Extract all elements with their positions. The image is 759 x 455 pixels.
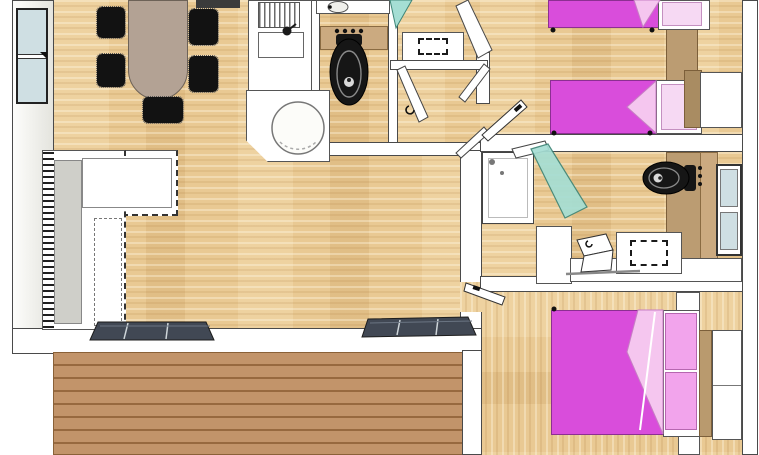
entry-hall-floor <box>390 0 486 155</box>
wc-right-wall <box>388 0 398 152</box>
deck-side-wall <box>462 350 482 455</box>
floor-plan-canvas <box>0 0 759 455</box>
kitchen-sink-bowl <box>258 32 304 58</box>
double-bed-cover <box>551 310 664 435</box>
sofa-back-cushion <box>82 158 172 208</box>
deck-terrace <box>53 352 463 455</box>
dining-chair <box>97 7 125 38</box>
cut-furniture-strip <box>196 0 240 8</box>
living-bottom-wall <box>12 328 482 354</box>
single-bed-1-pillow <box>662 2 702 26</box>
bathroom-window-pane <box>720 169 738 207</box>
vanity-side-cabinet <box>536 226 572 284</box>
wc-counter <box>320 26 388 50</box>
master-headboard <box>699 330 712 437</box>
dining-table <box>128 0 188 100</box>
dining-chair <box>189 9 218 45</box>
hall-cabinet-dashed-symbol <box>418 38 448 55</box>
sofa-seat-cushion <box>54 160 82 324</box>
master-nightstand-bottom <box>678 436 700 455</box>
dining-chair <box>97 54 125 87</box>
vanity-dashed-symbol <box>630 240 668 266</box>
master-wardrobe <box>712 330 742 440</box>
hall-inner-wall <box>390 60 488 70</box>
shower-tray-inner <box>488 158 528 218</box>
master-door-opening <box>460 282 482 312</box>
single-bed-1-cover <box>548 0 660 28</box>
single-bed-2-cover <box>550 80 658 134</box>
twin-bathroom-wall <box>480 134 743 152</box>
kitchen-corner-unit <box>246 90 330 162</box>
wc-washbasin <box>316 0 390 14</box>
sink-drainer <box>258 2 300 28</box>
sofa-side-cushion <box>94 218 122 326</box>
twin-wardrobe <box>700 72 742 128</box>
dining-chair <box>143 97 183 123</box>
double-bed-pillow <box>665 313 697 370</box>
bathroom-window <box>716 164 742 256</box>
double-bed-pillow <box>665 372 697 430</box>
sofa-armrest-hatch <box>43 152 54 328</box>
dining-chair <box>189 56 218 92</box>
right-exterior-wall <box>742 0 758 455</box>
living-window <box>16 8 48 104</box>
window-sash-bar <box>18 54 46 59</box>
corridor-wall <box>460 150 482 354</box>
bathroom-window-pane <box>720 212 738 250</box>
wardrobe-divider-line <box>713 385 741 386</box>
